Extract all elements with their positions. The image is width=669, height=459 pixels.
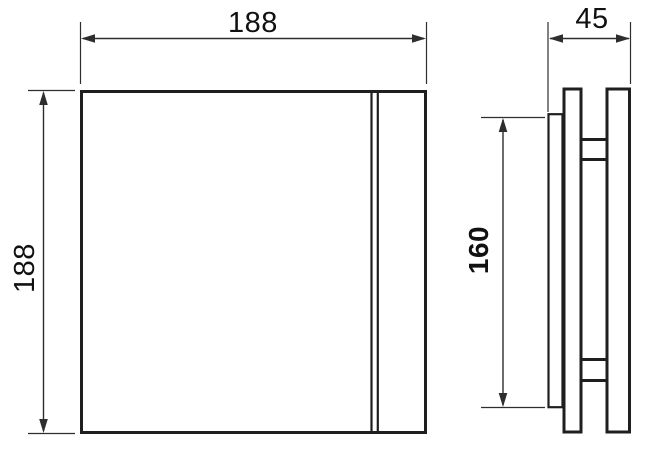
arrowhead-up-icon [499,118,508,132]
side-view-body [564,89,581,432]
side-depth-dimension-label: 45 [575,3,608,35]
front-view-outline [82,92,426,433]
arrowhead-down-icon [39,419,48,433]
dimension-front-height: 188 [9,91,75,434]
front-width-dimension-label: 188 [228,7,278,39]
side-view-front-panel [607,89,630,432]
dimension-front-width: 188 [81,7,427,84]
technical-drawing-canvas: 188 188 45 160 [0,0,669,459]
arrowhead-right-icon [616,34,630,43]
dimension-side-depth: 45 [548,3,631,112]
arrowhead-down-icon [499,393,508,407]
dimension-drawing: 188 188 45 160 [0,0,669,459]
front-view [82,92,426,433]
front-height-dimension-label: 188 [9,243,41,293]
side-view-mounting-plate [549,114,563,407]
arrowhead-up-icon [39,91,48,105]
arrowhead-right-icon [412,34,426,43]
arrowhead-left-icon [549,34,563,43]
dimension-side-mount-height: 160 [463,118,545,408]
arrowhead-left-icon [81,34,95,43]
side-view [549,89,630,432]
side-mount-height-dimension-label: 160 [463,226,494,274]
